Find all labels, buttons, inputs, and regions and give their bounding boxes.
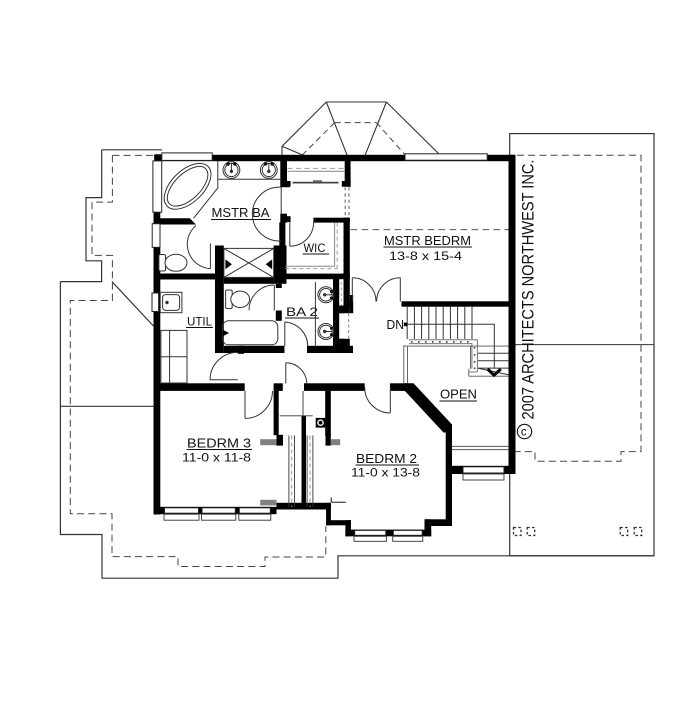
svg-text:BEDRM 3: BEDRM 3 xyxy=(187,437,251,451)
svg-text:11-0 x 13-8: 11-0 x 13-8 xyxy=(351,468,420,480)
svg-text:11-0 x 11-8: 11-0 x 11-8 xyxy=(182,453,251,465)
svg-text:UTIL: UTIL xyxy=(187,317,213,329)
svg-text:WIC: WIC xyxy=(304,243,326,255)
svg-text:DN: DN xyxy=(387,318,405,332)
svg-text:MSTR BA: MSTR BA xyxy=(212,206,271,220)
svg-text:2007 ARCHITECTS NORTHWEST INC.: 2007 ARCHITECTS NORTHWEST INC. xyxy=(520,160,538,420)
svg-text:BEDRM 2: BEDRM 2 xyxy=(356,452,417,466)
svg-text:c: c xyxy=(521,427,527,439)
svg-text:OPEN: OPEN xyxy=(440,388,477,402)
svg-text:BA 2: BA 2 xyxy=(286,307,318,319)
svg-text:MSTR BEDRM: MSTR BEDRM xyxy=(384,234,471,248)
svg-text:13-8 x 15-4: 13-8 x 15-4 xyxy=(389,251,463,263)
